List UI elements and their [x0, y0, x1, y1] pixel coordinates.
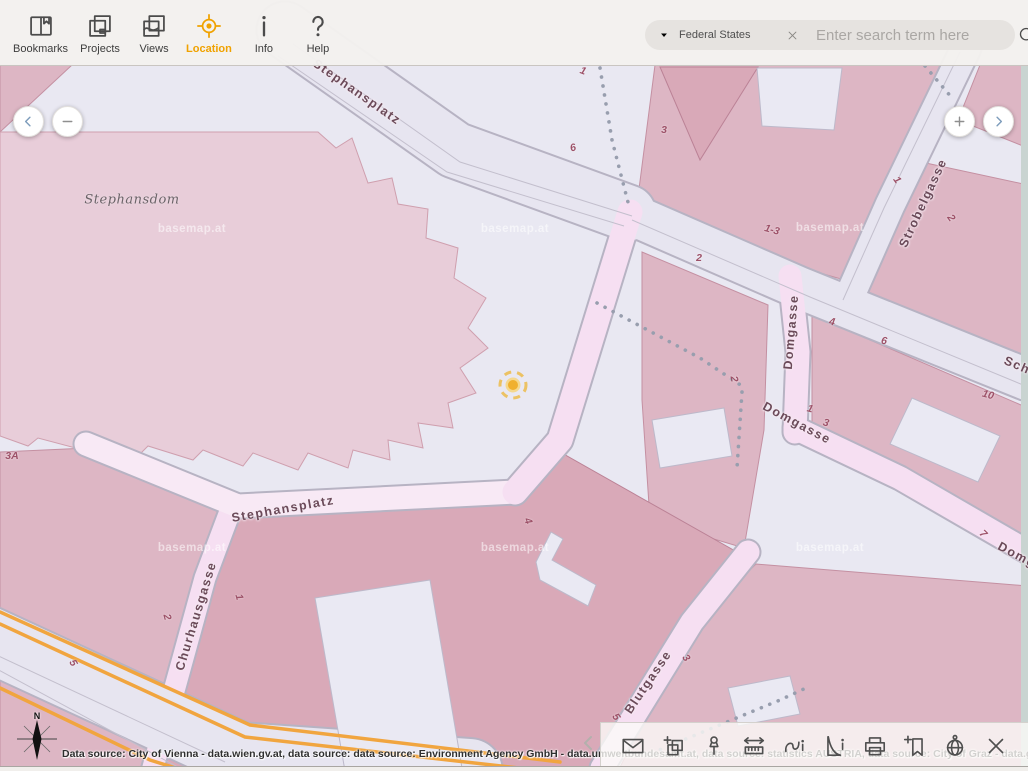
toolbar-item-projects[interactable]: Projects: [73, 8, 127, 57]
chevron-right-icon: [990, 113, 1007, 130]
envelope-icon: [620, 733, 646, 759]
plus-icon: [951, 113, 968, 130]
globe-icon: [942, 733, 968, 759]
close-icon: [983, 733, 1009, 759]
pin-icon: [701, 733, 727, 759]
history-back-button[interactable]: [13, 106, 44, 137]
projects-icon: [86, 12, 114, 40]
close-button[interactable]: [980, 730, 1012, 762]
toolbar-item-label: Bookmarks: [13, 43, 68, 55]
print-button[interactable]: [859, 730, 891, 762]
main-menu: Bookmarks Projects Views Location Info: [0, 8, 345, 57]
printer-icon: [862, 733, 888, 759]
help-icon: [304, 12, 332, 40]
toolbar-item-label: Projects: [80, 43, 120, 55]
page-info-icon: [822, 733, 848, 759]
search-bar: Federal States: [645, 20, 1015, 50]
toolbar-item-info[interactable]: Info: [237, 8, 291, 57]
toolbar-item-location[interactable]: Location: [181, 8, 237, 57]
top-toolbar: Bookmarks Projects Views Location Info: [0, 0, 1028, 66]
add-bookmark-button[interactable]: [899, 730, 931, 762]
minus-icon: [59, 113, 76, 130]
page-info-button[interactable]: [819, 730, 851, 762]
add-layers-button[interactable]: [658, 730, 690, 762]
measure-button[interactable]: [738, 730, 770, 762]
map-canvas[interactable]: [0, 0, 1028, 771]
bookmark-plus-icon: [902, 733, 928, 759]
compass: N: [14, 712, 60, 762]
building: [757, 68, 842, 130]
zoom-out-button[interactable]: [52, 106, 83, 137]
search-icon[interactable]: [1017, 25, 1028, 46]
caret-down-icon[interactable]: [657, 28, 671, 42]
locate-button[interactable]: [939, 730, 971, 762]
measure-icon: [741, 733, 767, 759]
compass-north-label: N: [34, 711, 41, 721]
layers-plus-icon: [661, 733, 687, 759]
toolbar-item-label: Views: [139, 43, 168, 55]
polyline-info-icon: [781, 733, 807, 759]
chevron-left-icon: [577, 731, 601, 755]
compass-needle: [33, 720, 42, 760]
footer-strip: [0, 766, 1028, 771]
line-info-button[interactable]: [778, 730, 810, 762]
toolbar-item-label: Help: [307, 43, 330, 55]
toolbar-item-help[interactable]: Help: [291, 8, 345, 57]
info-icon: [250, 12, 278, 40]
clear-icon[interactable]: [785, 28, 800, 43]
collapse-toolbar-button[interactable]: [577, 731, 601, 758]
views-icon: [140, 12, 168, 40]
toolbar-item-views[interactable]: Views: [127, 8, 181, 57]
send-email-button[interactable]: [617, 730, 649, 762]
zoom-in-button[interactable]: [944, 106, 975, 137]
search-category-dropdown[interactable]: Federal States: [679, 29, 765, 41]
set-pin-button[interactable]: [698, 730, 730, 762]
bottom-toolbar: [600, 722, 1028, 770]
location-icon: [195, 12, 223, 40]
search-input[interactable]: [814, 26, 1017, 45]
chevron-left-icon: [20, 113, 37, 130]
toolbar-item-bookmarks[interactable]: Bookmarks: [8, 8, 73, 57]
history-forward-button[interactable]: [983, 106, 1014, 137]
toolbar-item-label: Location: [186, 43, 232, 55]
bookmarks-icon: [27, 12, 55, 40]
toolbar-item-label: Info: [255, 43, 273, 55]
